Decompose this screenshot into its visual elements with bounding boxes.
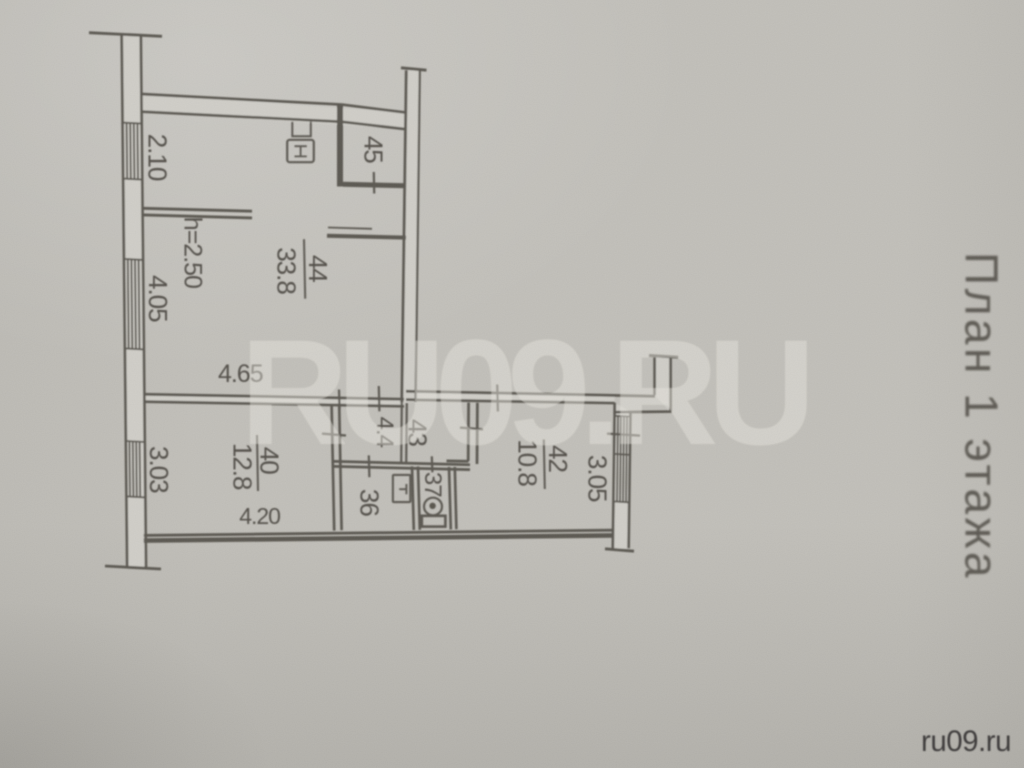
svg-text:ru09.ru: ru09.ru bbox=[921, 725, 1011, 758]
